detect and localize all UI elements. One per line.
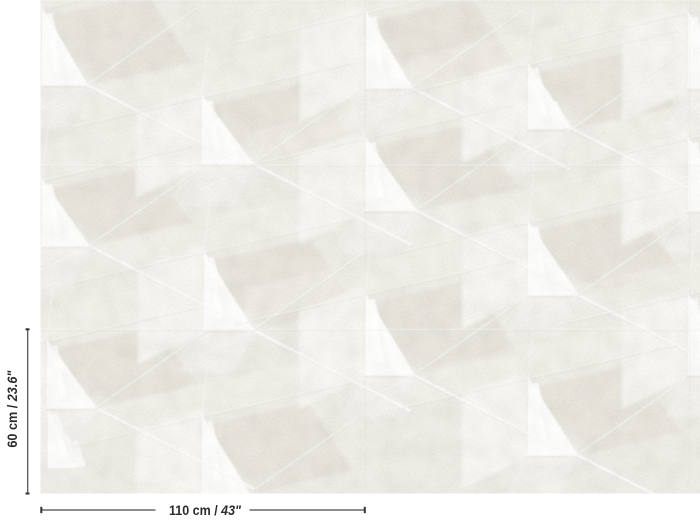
svg-text:60 cm / 23.6": 60 cm / 23.6" [5, 370, 20, 448]
svg-text:110 cm / 43": 110 cm / 43" [169, 503, 242, 518]
